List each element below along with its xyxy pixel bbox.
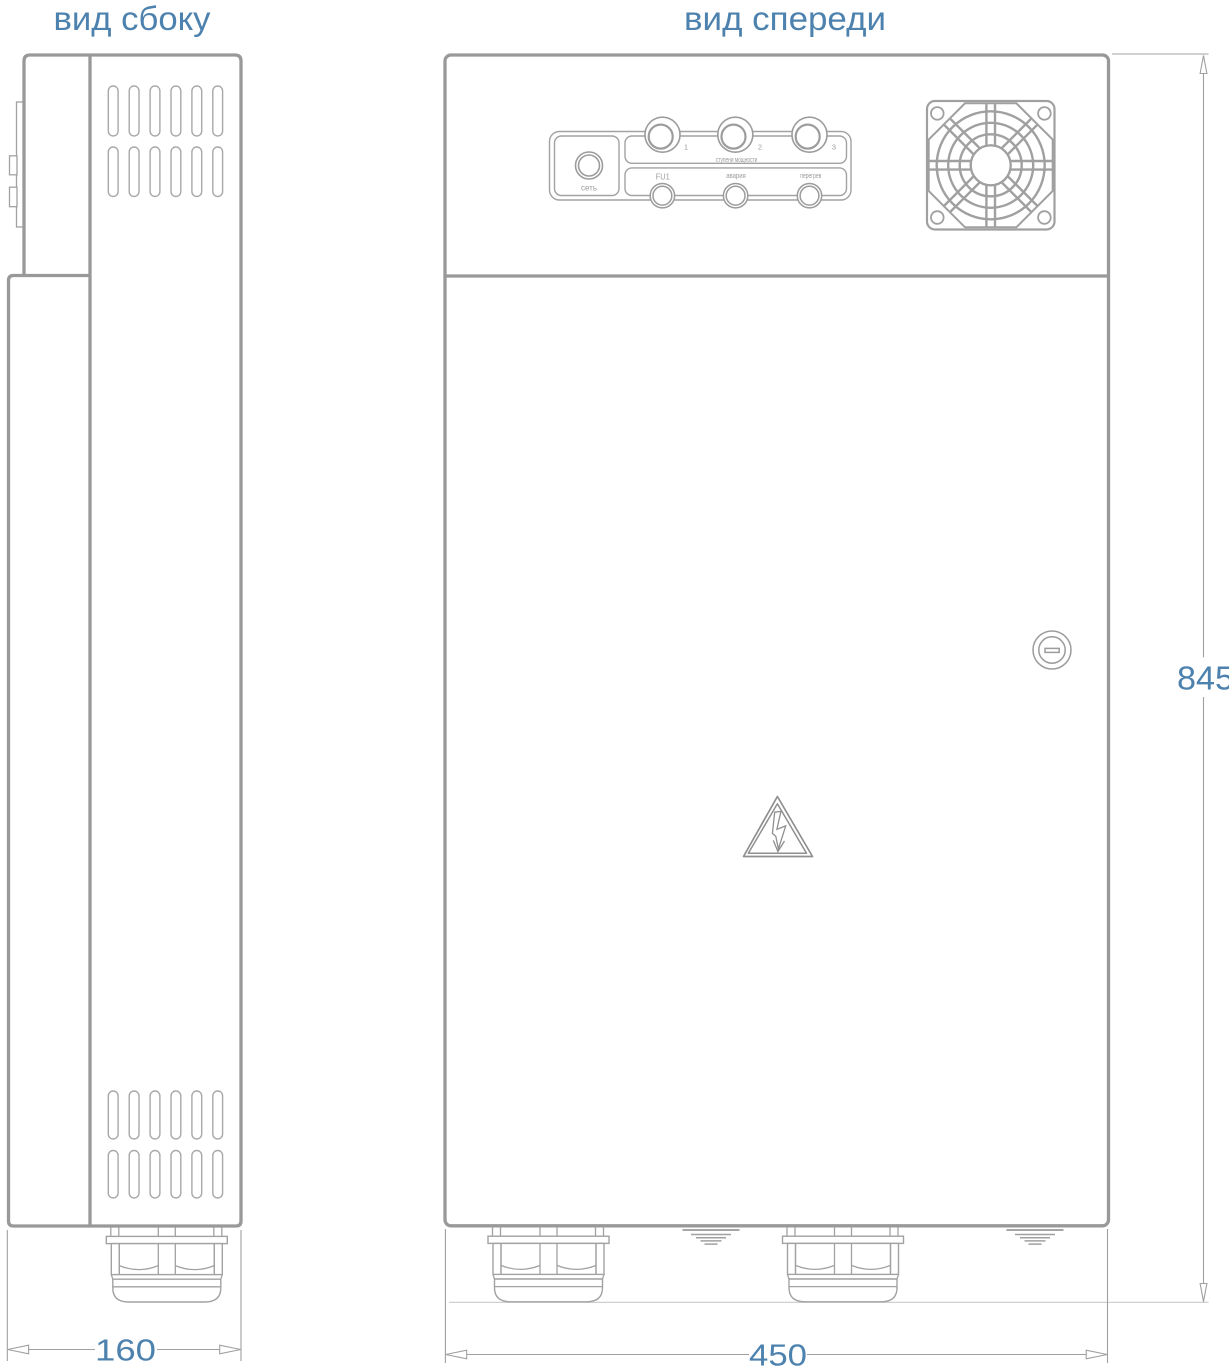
svg-text:845: 845 [1177, 660, 1229, 697]
svg-text:3: 3 [832, 143, 836, 152]
svg-text:авария: авария [726, 173, 746, 180]
svg-text:160: 160 [95, 1333, 156, 1368]
svg-text:ступени мощности: ступени мощности [716, 157, 758, 164]
svg-text:перегрев: перегрев [800, 173, 821, 180]
svg-text:1: 1 [684, 143, 688, 152]
svg-text:вид сбоку: вид сбоку [54, 0, 212, 37]
svg-text:вид спереди: вид спереди [684, 0, 886, 37]
svg-text:сеть: сеть [581, 184, 597, 193]
svg-text:FU1: FU1 [656, 172, 670, 182]
svg-text:450: 450 [749, 1338, 807, 1370]
svg-text:2: 2 [758, 143, 762, 152]
